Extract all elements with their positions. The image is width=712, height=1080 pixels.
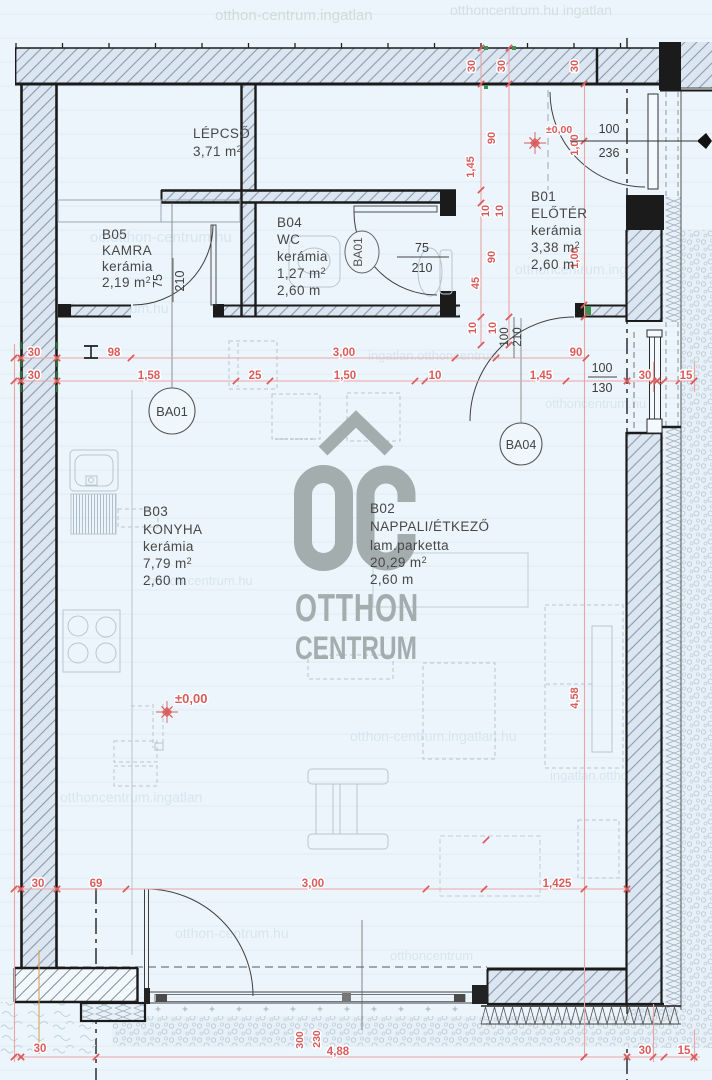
svg-text:210: 210 [412, 261, 433, 275]
svg-text:10: 10 [429, 370, 442, 382]
svg-text:15: 15 [678, 1045, 691, 1057]
svg-text:1,425: 1,425 [543, 878, 572, 890]
svg-text:90: 90 [570, 347, 583, 359]
svg-text:30: 30 [466, 60, 478, 72]
svg-text:kerámia: kerámia [102, 259, 153, 274]
svg-text:2,60 m: 2,60 m [143, 573, 187, 588]
svg-text:30: 30 [28, 370, 41, 382]
svg-text:B05: B05 [102, 227, 127, 242]
svg-text:otthon-centrum.ingatlan.hu: otthon-centrum.ingatlan.hu [350, 728, 517, 744]
svg-text:1,45: 1,45 [530, 370, 553, 382]
svg-text:CENTRUM: CENTRUM [295, 630, 417, 666]
svg-text:30: 30 [639, 1045, 652, 1057]
svg-text:±0,00: ±0,00 [175, 691, 207, 706]
svg-text:130: 130 [592, 381, 613, 395]
svg-text:75: 75 [151, 274, 165, 288]
svg-text:WC: WC [277, 232, 300, 247]
svg-text:30: 30 [569, 60, 581, 72]
svg-text:30: 30 [28, 347, 41, 359]
svg-text:ingatlan.otthoncentrum: ingatlan.otthoncentrum [368, 348, 500, 363]
svg-text:BA01: BA01 [351, 237, 365, 267]
svg-text:7,79 m2: 7,79 m2 [143, 556, 192, 571]
svg-text:69: 69 [90, 878, 103, 890]
svg-text:45: 45 [470, 277, 482, 289]
svg-text:30: 30 [34, 1043, 47, 1055]
svg-text:KAMRA: KAMRA [102, 243, 152, 258]
svg-text:1,50: 1,50 [334, 370, 356, 382]
svg-text:1,58: 1,58 [138, 370, 161, 382]
svg-text:lam.parketta: lam.parketta [370, 538, 449, 553]
svg-text:kerámia: kerámia [277, 249, 328, 264]
svg-text:1,00: 1,00 [569, 134, 581, 155]
svg-text:otthoncentrum.hu ingatlan: otthoncentrum.hu ingatlan [450, 2, 612, 18]
svg-text:10: 10 [487, 322, 499, 334]
svg-text:ELŐTÉR: ELŐTÉR [531, 206, 587, 221]
svg-text:3,38 m2: 3,38 m2 [531, 240, 580, 255]
svg-text:98: 98 [108, 347, 121, 359]
svg-text:LÉPCSŐ: LÉPCSŐ [193, 126, 250, 141]
svg-text:20,29 m2: 20,29 m2 [370, 555, 427, 570]
svg-text:KONYHA: KONYHA [143, 522, 202, 537]
svg-text:otthoncentrum: otthoncentrum [390, 948, 473, 963]
svg-text:B02: B02 [370, 501, 395, 516]
svg-text:4,88: 4,88 [327, 1046, 350, 1058]
svg-text:1,45: 1,45 [465, 156, 477, 177]
svg-text:90: 90 [486, 132, 498, 144]
svg-text:1,27 m2: 1,27 m2 [277, 266, 326, 281]
svg-text:B03: B03 [143, 504, 168, 519]
svg-text:100: 100 [592, 361, 613, 375]
svg-text:2,60 m: 2,60 m [277, 283, 321, 298]
svg-text:±0,00: ±0,00 [546, 124, 572, 136]
svg-text:230: 230 [311, 1030, 323, 1048]
svg-text:BA04: BA04 [506, 438, 537, 452]
svg-text:3,00: 3,00 [302, 878, 324, 890]
svg-text:NAPPALI/ÉTKEZŐ: NAPPALI/ÉTKEZŐ [370, 519, 489, 534]
svg-text:10: 10 [467, 322, 479, 334]
svg-text:10: 10 [494, 205, 506, 217]
svg-text:4,58: 4,58 [569, 687, 581, 708]
svg-text:otthoncentrum.hu: otthoncentrum.hu [545, 396, 646, 411]
svg-text:30: 30 [496, 60, 508, 72]
svg-text:15: 15 [680, 370, 693, 382]
svg-text:B01: B01 [531, 189, 556, 204]
svg-text:236: 236 [599, 146, 620, 160]
svg-text:2,19 m2: 2,19 m2 [102, 275, 151, 290]
svg-text:BA01: BA01 [156, 404, 188, 419]
svg-text:kerámia: kerámia [531, 223, 582, 238]
svg-text:kerámia: kerámia [143, 539, 194, 554]
svg-text:2,60 m: 2,60 m [370, 572, 414, 587]
svg-text:25: 25 [249, 370, 262, 382]
svg-text:2,60 m: 2,60 m [531, 257, 575, 272]
svg-text:3,00: 3,00 [333, 347, 355, 359]
svg-text:3,71 m2: 3,71 m2 [193, 144, 242, 159]
svg-text:300: 300 [294, 1031, 306, 1049]
svg-text:30: 30 [32, 878, 45, 890]
svg-text:B04: B04 [277, 215, 302, 230]
svg-text:100: 100 [599, 122, 620, 136]
svg-text:30: 30 [639, 370, 652, 382]
svg-text:10: 10 [480, 205, 492, 217]
svg-text:210: 210 [173, 271, 187, 292]
svg-text:otthoncentrum.ingatlan: otthoncentrum.ingatlan [60, 789, 202, 805]
svg-text:75: 75 [415, 241, 429, 255]
svg-text:90: 90 [486, 251, 498, 263]
svg-text:otthon-centrum.hu: otthon-centrum.hu [175, 925, 289, 941]
svg-text:otthon-centrum.ingatlan: otthon-centrum.ingatlan [215, 7, 373, 24]
svg-text:OTTHON: OTTHON [295, 587, 419, 630]
